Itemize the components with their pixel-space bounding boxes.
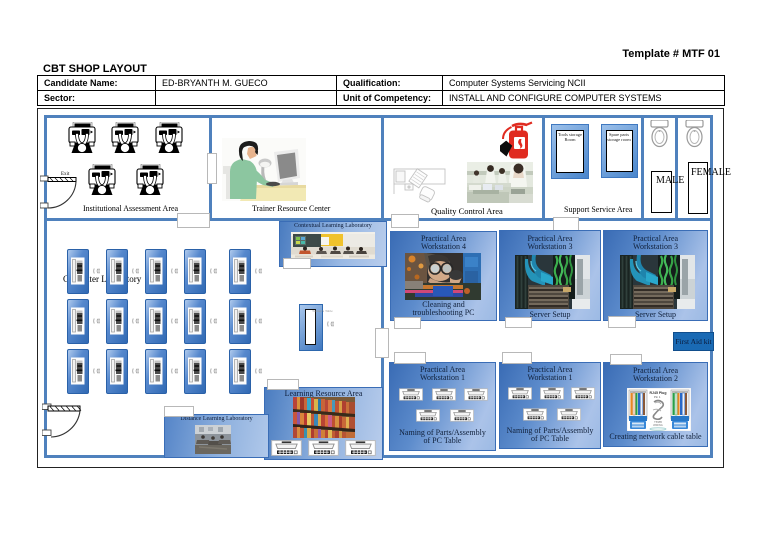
svg-text:Pin 1: Pin 1: [654, 395, 661, 399]
svg-text:WIRING: WIRING: [653, 423, 663, 427]
